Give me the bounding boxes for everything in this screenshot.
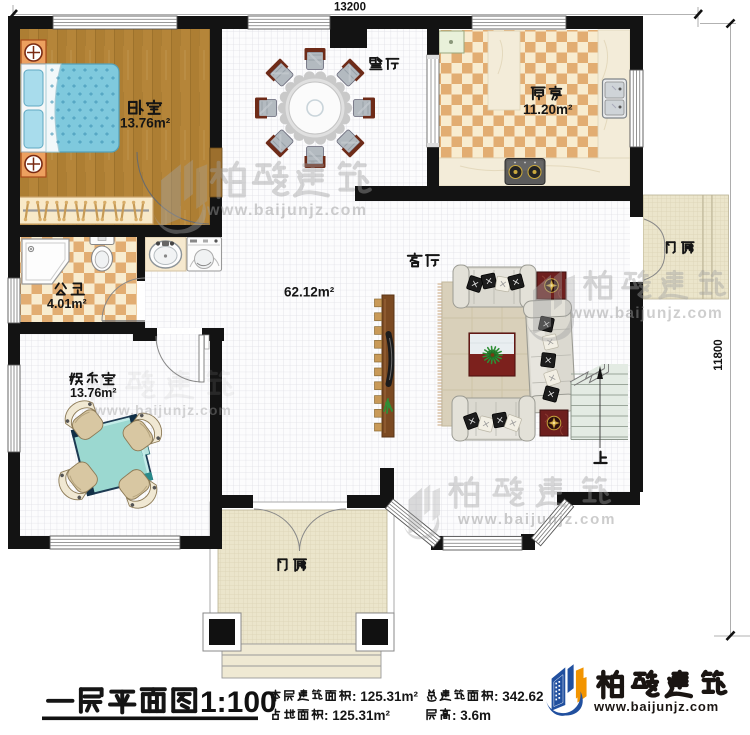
svg-text:13200: 13200 bbox=[334, 2, 366, 14]
svg-text:11.20m²: 11.20m² bbox=[523, 102, 573, 117]
svg-text:: 125.31m²: : 125.31m² bbox=[352, 689, 419, 704]
svg-text:13.76m²: 13.76m² bbox=[120, 116, 171, 131]
svg-text:www.baijunjz.com: www.baijunjz.com bbox=[94, 402, 232, 418]
svg-text:: 3.6m: : 3.6m bbox=[452, 708, 491, 723]
svg-text:11800: 11800 bbox=[713, 339, 725, 370]
svg-text:www.baijunjz.com: www.baijunjz.com bbox=[569, 305, 723, 322]
svg-text:www.baijunjz.com: www.baijunjz.com bbox=[206, 202, 368, 219]
svg-text:1:100: 1:100 bbox=[200, 686, 277, 719]
svg-text:www.baijunjz.com: www.baijunjz.com bbox=[593, 699, 719, 714]
svg-text:: 125.31m²: : 125.31m² bbox=[324, 708, 391, 723]
svg-text:62.12m²: 62.12m² bbox=[284, 285, 335, 300]
svg-text:4.01m²: 4.01m² bbox=[47, 297, 87, 311]
svg-text:: 342.62: : 342.62 bbox=[494, 689, 544, 704]
svg-text:13.76m²: 13.76m² bbox=[70, 386, 117, 400]
svg-text:www.baijunjz.com: www.baijunjz.com bbox=[457, 511, 616, 528]
